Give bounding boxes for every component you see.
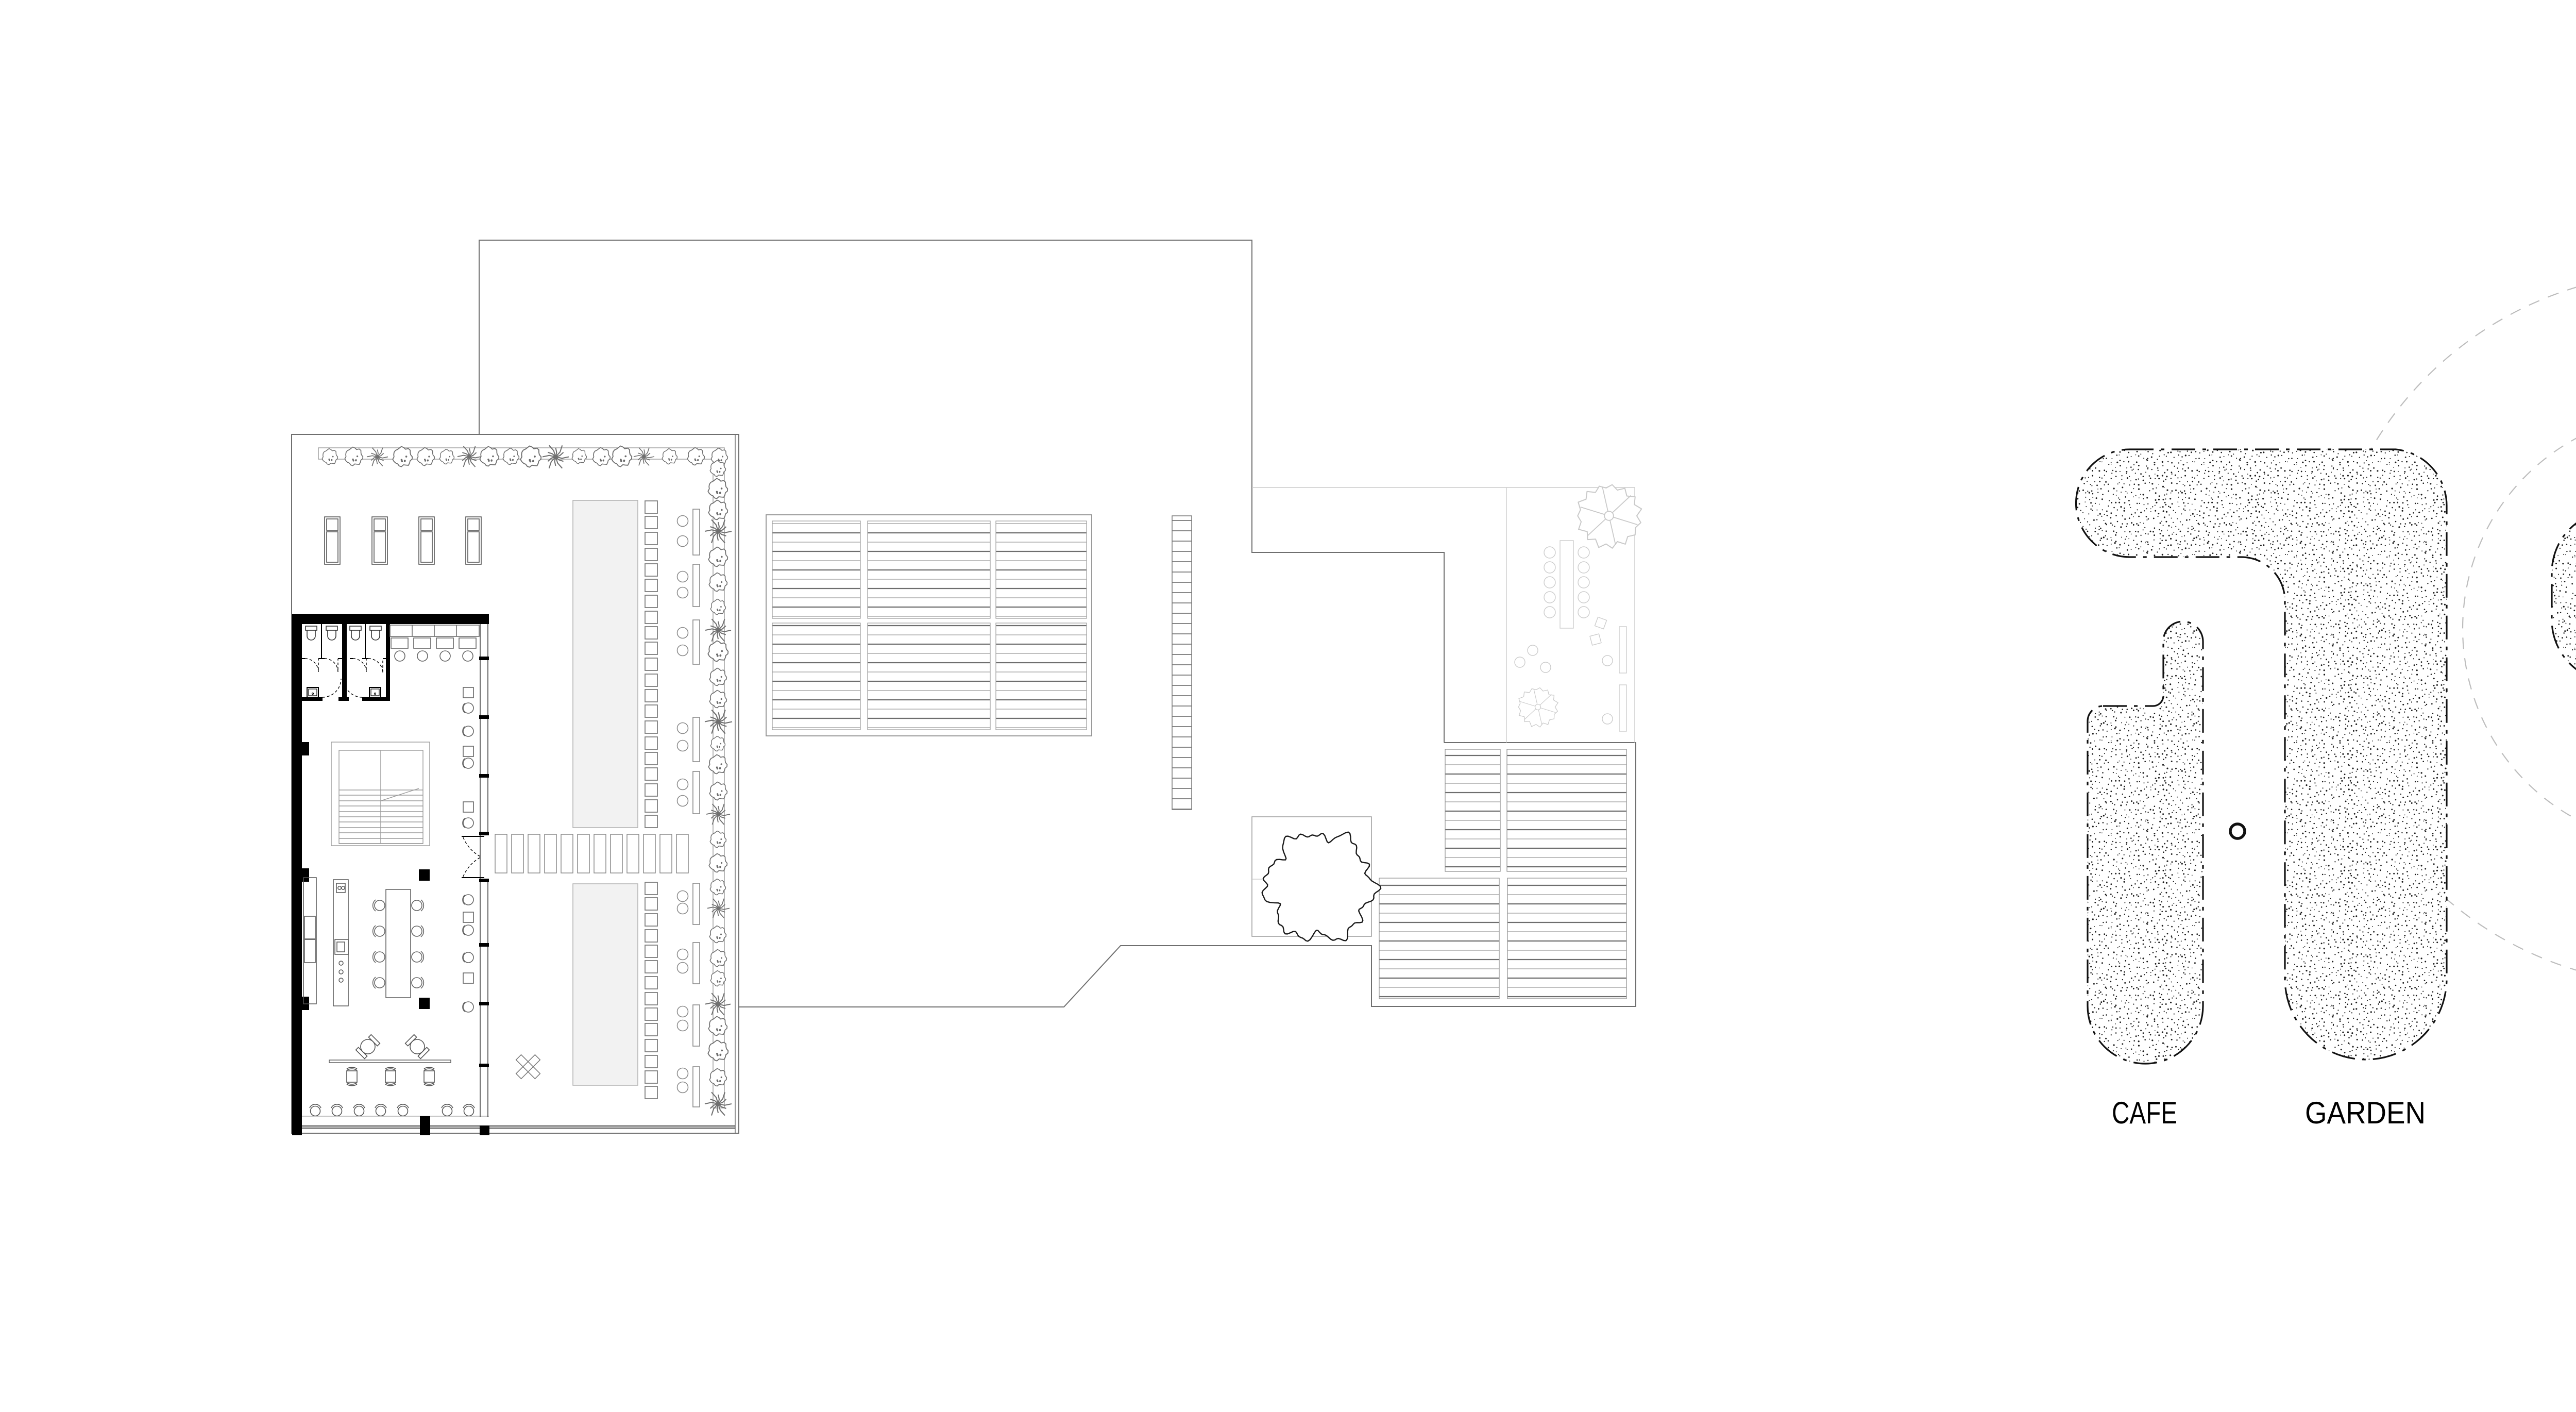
svg-text:CAFE: CAFE bbox=[2112, 1096, 2177, 1130]
svg-text:GARDEN: GARDEN bbox=[2305, 1096, 2426, 1130]
